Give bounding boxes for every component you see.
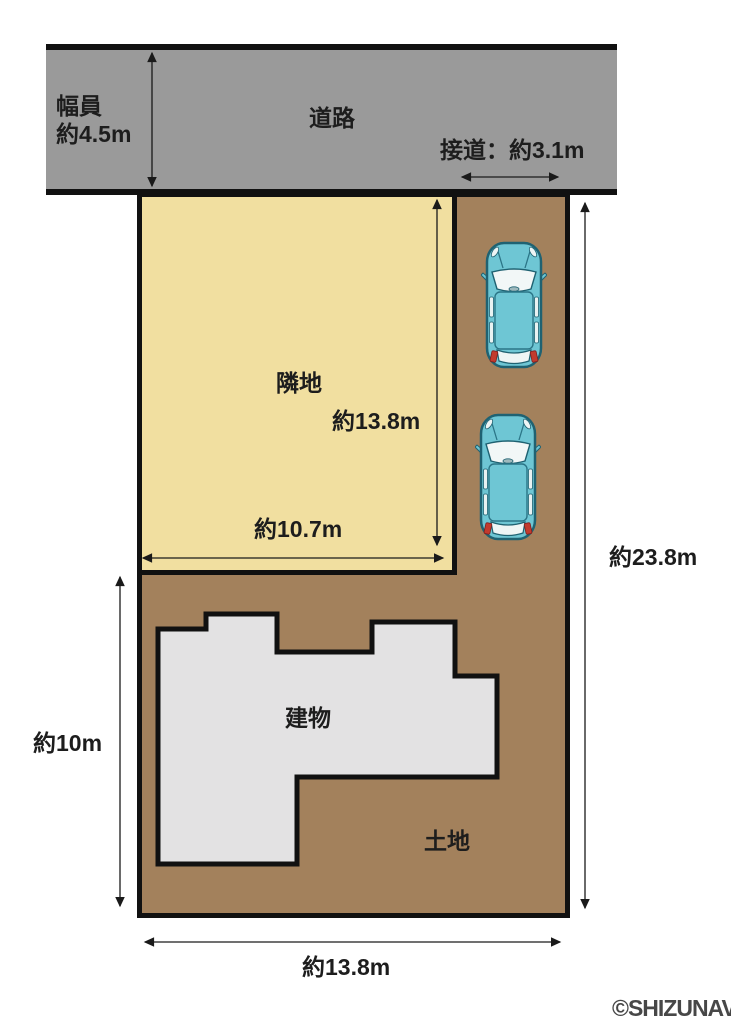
building-label: 建物: [285, 704, 331, 732]
car-top-view-icon: [481, 240, 547, 370]
neighbor-depth-dim-label: 約13.8m: [332, 407, 420, 435]
watermark: ©SHIZUNAVI: [612, 995, 731, 1022]
road-label: 道路: [309, 104, 355, 132]
land-left-dim-label: 約10m: [33, 729, 102, 757]
car-top-view-icon: [475, 412, 541, 542]
road-width-label-line2: 約4.5m: [56, 120, 131, 148]
land-right-dim-label: 約23.8m: [609, 543, 697, 571]
frontage-label: 接道：約3.1m: [440, 136, 584, 164]
land-label: 土地: [424, 827, 470, 855]
neighbor-label: 隣地: [276, 369, 322, 397]
road-width-label-line1: 幅員: [56, 92, 131, 120]
neighbor-width-dim-label: 約10.7m: [254, 515, 342, 543]
land-bottom-dim-label: 約13.8m: [302, 953, 390, 981]
road-width-label: 幅員 約4.5m: [56, 92, 131, 148]
site-plan-page: { "road": { "label": "道路", "width_label"…: [0, 0, 731, 1024]
